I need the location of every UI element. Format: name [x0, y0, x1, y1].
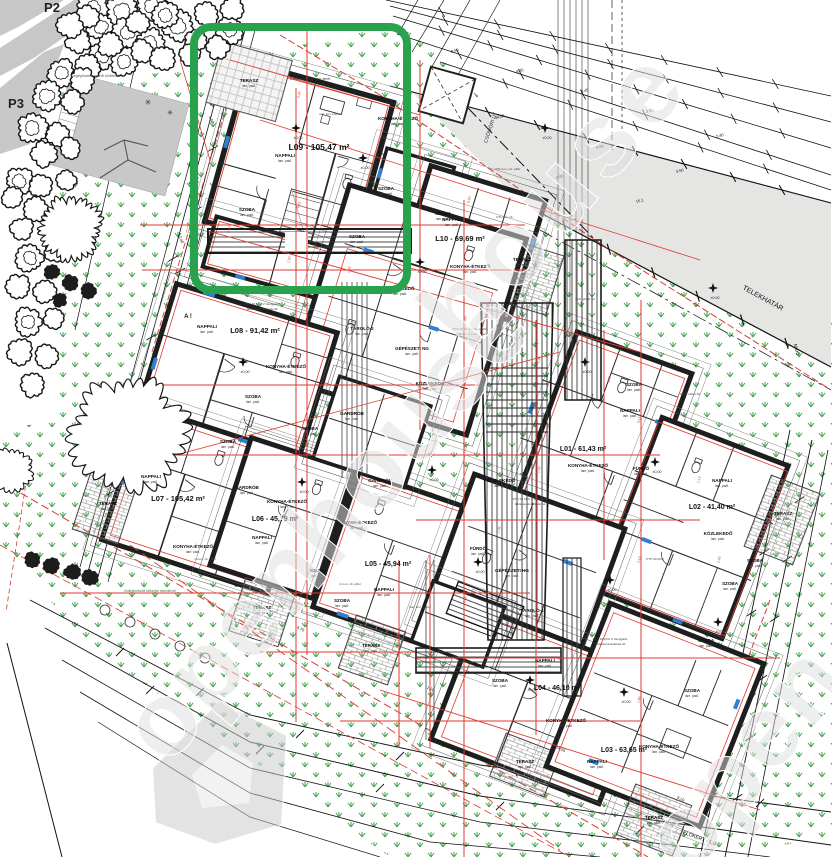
svg-text:KONYHA-ÉTKEZŐ: KONYHA-ÉTKEZŐ	[173, 542, 213, 549]
svg-text:lam. padl.: lam. padl.	[279, 370, 293, 374]
svg-text:stat. terv szerint: stat. terv szerint	[319, 112, 341, 116]
svg-text:2 mon. vb. pillér szig. keret: 2 mon. vb. pillér szig. keret	[290, 77, 330, 81]
svg-text:±0,00: ±0,00	[711, 296, 720, 300]
svg-text:SZOBA: SZOBA	[722, 581, 739, 586]
svg-text:±0,00: ±0,00	[608, 588, 617, 592]
svg-text:lam. padl.: lam. padl.	[240, 213, 254, 217]
svg-text:PTH 30 AKU: PTH 30 AKU	[646, 557, 664, 561]
svg-text:tábláskerámiablokk fal: tábláskerámiablokk fal	[515, 502, 546, 506]
svg-text:±0,00: ±0,00	[361, 166, 370, 170]
svg-text:lam. padl.: lam. padl.	[200, 330, 214, 334]
svg-text:lam. padl.: lam. padl.	[699, 644, 713, 648]
svg-text:SZOBA: SZOBA	[747, 558, 764, 563]
svg-text:lam. padl.: lam. padl.	[221, 445, 235, 449]
svg-text:Poffá előtét fal: Poffá előtét fal	[680, 392, 700, 396]
svg-text:±0,00: ±0,00	[294, 136, 303, 140]
svg-text:KÖZLEKEDŐ: KÖZLEKEDŐ	[487, 477, 516, 483]
svg-text:✳: ✳	[167, 109, 173, 117]
svg-text:KONYHA-ÉTKEZŐ: KONYHA-ÉTKEZŐ	[378, 114, 418, 121]
svg-text:±0,00: ±0,00	[583, 370, 592, 374]
svg-text:lam. padl.: lam. padl.	[581, 469, 595, 473]
svg-text:A !: A !	[184, 314, 192, 320]
svg-text:lam. padl.: lam. padl.	[242, 84, 256, 88]
svg-text:TERASZ: TERASZ	[774, 511, 793, 516]
svg-text:lam. padl.: lam. padl.	[350, 240, 364, 244]
svg-text:L07 - 105,42 m²: L07 - 105,42 m²	[151, 494, 205, 503]
svg-text:SZOBA: SZOBA	[492, 678, 509, 683]
svg-text:lam. padl.: lam. padl.	[240, 491, 254, 495]
svg-text:1 mon. vb. pillér: 1 mon. vb. pillér	[194, 557, 216, 561]
svg-text:L09 - 105,47 m²: L09 - 105,47 m²	[289, 142, 350, 152]
svg-text:±0,00: ±0,00	[241, 370, 250, 374]
svg-text:lam. padl.: lam. padl.	[634, 472, 648, 476]
svg-text:lam. padl.: lam. padl.	[776, 517, 790, 521]
svg-text:KONYHA-ÉTKEZŐ: KONYHA-ÉTKEZŐ	[546, 716, 586, 723]
svg-text:SZOBA: SZOBA	[684, 688, 701, 693]
svg-text:lam. padl.: lam. padl.	[623, 414, 637, 418]
svg-text:GÉPÉSZETI HG: GÉPÉSZETI HG	[495, 566, 529, 573]
svg-text:lam. padl.: lam. padl.	[246, 400, 260, 404]
svg-text:lam. padl.: lam. padl.	[377, 593, 391, 597]
svg-text:lam. padl.: lam. padl.	[436, 217, 450, 221]
svg-text:SZOBA: SZOBA	[239, 207, 256, 212]
svg-text:L02 - 41,40 m²: L02 - 41,40 m²	[689, 504, 736, 511]
svg-text:PTH 30 AKU Z hanggátló: PTH 30 AKU Z hanggátló	[593, 637, 628, 641]
svg-text:lam. padl.: lam. padl.	[144, 480, 158, 484]
svg-text:P2: P2	[44, 0, 60, 15]
svg-text:P3: P3	[8, 96, 24, 111]
svg-text:PTH 30 AKU Z hanggátló: PTH 30 AKU Z hanggátló	[513, 497, 548, 501]
svg-text:NAPPALI: NAPPALI	[712, 478, 732, 483]
svg-text:lam. padl.: lam. padl.	[364, 649, 378, 653]
svg-text:lam. padl.: lam. padl.	[748, 564, 762, 568]
svg-text:lam. padl.: lam. padl.	[278, 159, 292, 163]
svg-text:lam. padl.: lam. padl.	[101, 507, 115, 511]
svg-text:FÜRDŐ: FÜRDŐ	[633, 465, 650, 471]
svg-text:SZOBA: SZOBA	[302, 426, 319, 431]
svg-text:lam. padl.: lam. padl.	[559, 724, 573, 728]
svg-text:stat. terv szerint: stat. terv szerint	[409, 605, 431, 609]
svg-text:PTH 30 AKU Z hanggátló: PTH 30 AKU Z hanggátló	[245, 302, 280, 306]
svg-text:NAPPALI: NAPPALI	[197, 324, 217, 329]
svg-text:TERASZ: TERASZ	[516, 759, 535, 764]
svg-text:épületkontúrtól előkertbe tele: épületkontúrtól előkertbe telepítendő	[124, 589, 176, 593]
svg-text:lam. padl.: lam. padl.	[391, 122, 405, 126]
svg-text:lam. padl.: lam. padl.	[494, 484, 508, 488]
svg-text:lam. padl.: lam. padl.	[685, 694, 699, 698]
svg-text:NAPPALI: NAPPALI	[587, 759, 607, 764]
svg-text:KÖZLEKEDŐ: KÖZLEKEDŐ	[704, 530, 733, 536]
svg-text:szegélykövek lehatárolt zöldfe: szegélykövek lehatárolt zöldfelület	[71, 74, 119, 78]
svg-text:TERASZ: TERASZ	[99, 501, 118, 506]
svg-text:SZOBA: SZOBA	[626, 382, 643, 387]
svg-text:SZOBA: SZOBA	[349, 234, 366, 239]
svg-text:±0,00: ±0,00	[476, 570, 485, 574]
svg-text:lam. padl.: lam. padl.	[715, 484, 729, 488]
svg-text:SZOBA: SZOBA	[378, 186, 395, 191]
svg-text:SZOBA: SZOBA	[245, 394, 262, 399]
svg-text:±0,00: ±0,00	[528, 688, 537, 692]
svg-text:GARDRÓB: GARDRÓB	[235, 483, 259, 490]
svg-text:lam. padl.: lam. padl.	[518, 765, 532, 769]
svg-text:SZOBA: SZOBA	[220, 439, 237, 444]
svg-text:TERASZ: TERASZ	[240, 78, 259, 83]
svg-text:±0,00: ±0,00	[716, 630, 725, 634]
svg-text:L01 - 61,43 m²: L01 - 61,43 m²	[560, 446, 607, 453]
svg-text:±0,00: ±0,00	[653, 470, 662, 474]
svg-text:lam. padl.: lam. padl.	[493, 684, 507, 688]
svg-text:KONYHA-ÉTKEZŐ: KONYHA-ÉTKEZŐ	[568, 461, 608, 468]
svg-text:tábláskerámiablokk fal: tábláskerámiablokk fal	[247, 307, 278, 311]
svg-text:NAPPALI: NAPPALI	[141, 474, 161, 479]
svg-text:SZOBA: SZOBA	[698, 638, 715, 643]
svg-text:KONYHA-ÉTKEZŐ: KONYHA-ÉTKEZŐ	[639, 742, 679, 749]
svg-text:lam. padl.: lam. padl.	[303, 432, 317, 436]
svg-text:NAPPALI: NAPPALI	[535, 658, 555, 663]
svg-text:lam. padl.: lam. padl.	[471, 552, 485, 556]
svg-text:TÁROLÓ-4: TÁROLÓ-4	[520, 606, 544, 613]
svg-text:NAPPALI: NAPPALI	[275, 153, 295, 158]
svg-text:±0,00: ±0,00	[622, 700, 631, 704]
svg-text:tábláskerámiablokk fal: tábláskerámiablokk fal	[595, 642, 626, 646]
svg-text:L04 - 46,10 m²: L04 - 46,10 m²	[534, 685, 581, 692]
svg-text:lam. padl.: lam. padl.	[590, 765, 604, 769]
svg-text:L08 - 91,42 m²: L08 - 91,42 m²	[230, 326, 280, 335]
svg-text:TÁROLÓ-2: TÁROLÓ-2	[350, 324, 374, 331]
svg-text:lam. padl.: lam. padl.	[538, 664, 552, 668]
svg-text:SZOBA: SZOBA	[435, 211, 452, 216]
svg-text:lam. padl.: lam. padl.	[335, 604, 349, 608]
svg-text:FÜRDŐ: FÜRDŐ	[470, 545, 487, 551]
svg-text:lam. padl.: lam. padl.	[355, 332, 369, 336]
svg-text:lam. padl.: lam. padl.	[723, 587, 737, 591]
svg-text:L05 - 45,94 m²: L05 - 45,94 m²	[365, 561, 412, 568]
svg-text:NAPPALI: NAPPALI	[620, 408, 640, 413]
svg-text:KONYHA-ÉTKEZŐ: KONYHA-ÉTKEZŐ	[266, 362, 306, 369]
svg-text:✳: ✳	[145, 98, 152, 107]
svg-text:NAPPALI: NAPPALI	[374, 587, 394, 592]
svg-text:lam. padl.: lam. padl.	[186, 550, 200, 554]
svg-text:közl. előtét fal: közl. előtét fal	[576, 297, 595, 301]
svg-text:lam. padl.: lam. padl.	[627, 388, 641, 392]
svg-text:lam. padl.: lam. padl.	[379, 192, 393, 196]
svg-text:lam. padl.: lam. padl.	[711, 537, 725, 541]
svg-text:lam. padl.: lam. padl.	[652, 750, 666, 754]
svg-text:TERASZ: TERASZ	[362, 643, 381, 648]
svg-text:lam. padl.: lam. padl.	[505, 574, 519, 578]
